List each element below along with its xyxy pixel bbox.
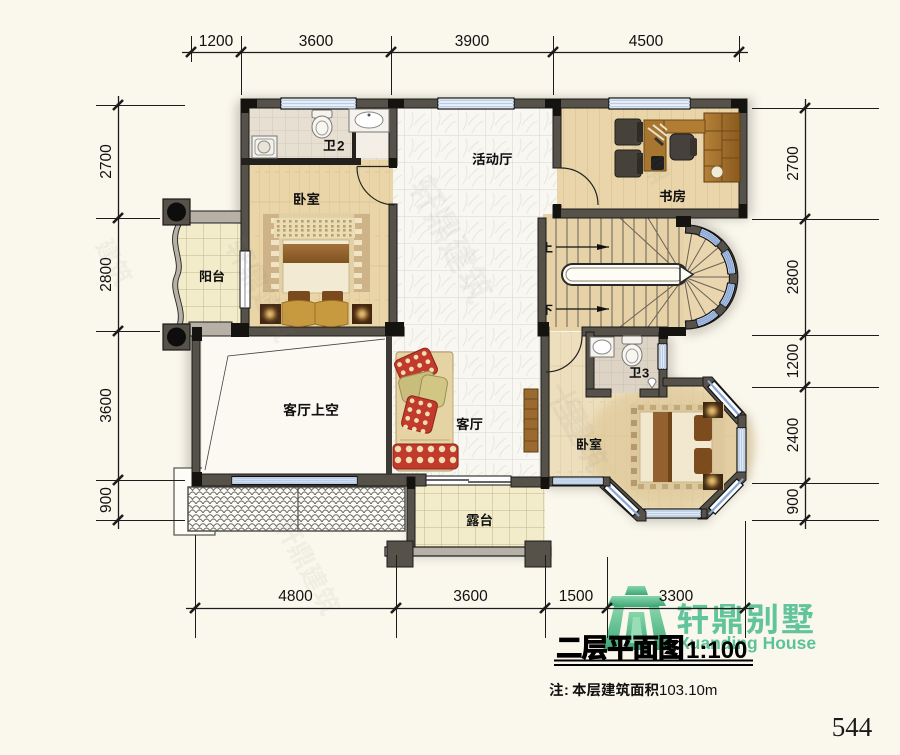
svg-text:3300: 3300 bbox=[659, 588, 694, 605]
svg-text:1200: 1200 bbox=[785, 343, 802, 378]
svg-text:900: 900 bbox=[98, 487, 115, 513]
svg-text:2400: 2400 bbox=[785, 417, 802, 452]
svg-text:4500: 4500 bbox=[629, 33, 664, 50]
svg-text:3600: 3600 bbox=[98, 388, 115, 423]
svg-text:3: 3 bbox=[642, 366, 649, 381]
svg-text:2700: 2700 bbox=[98, 144, 115, 179]
svg-text:1200: 1200 bbox=[199, 33, 234, 50]
svg-text::: : bbox=[564, 683, 569, 699]
svg-text:544: 544 bbox=[832, 712, 873, 742]
svg-text:103.10m: 103.10m bbox=[659, 682, 717, 699]
svg-text:3600: 3600 bbox=[453, 588, 488, 605]
svg-text:2800: 2800 bbox=[785, 259, 802, 294]
svg-text:1500: 1500 bbox=[559, 588, 594, 605]
svg-text:900: 900 bbox=[785, 488, 802, 514]
svg-text:3600: 3600 bbox=[299, 33, 334, 50]
svg-text:2700: 2700 bbox=[785, 146, 802, 181]
svg-text:3900: 3900 bbox=[455, 33, 490, 50]
svg-text:2: 2 bbox=[337, 139, 345, 154]
